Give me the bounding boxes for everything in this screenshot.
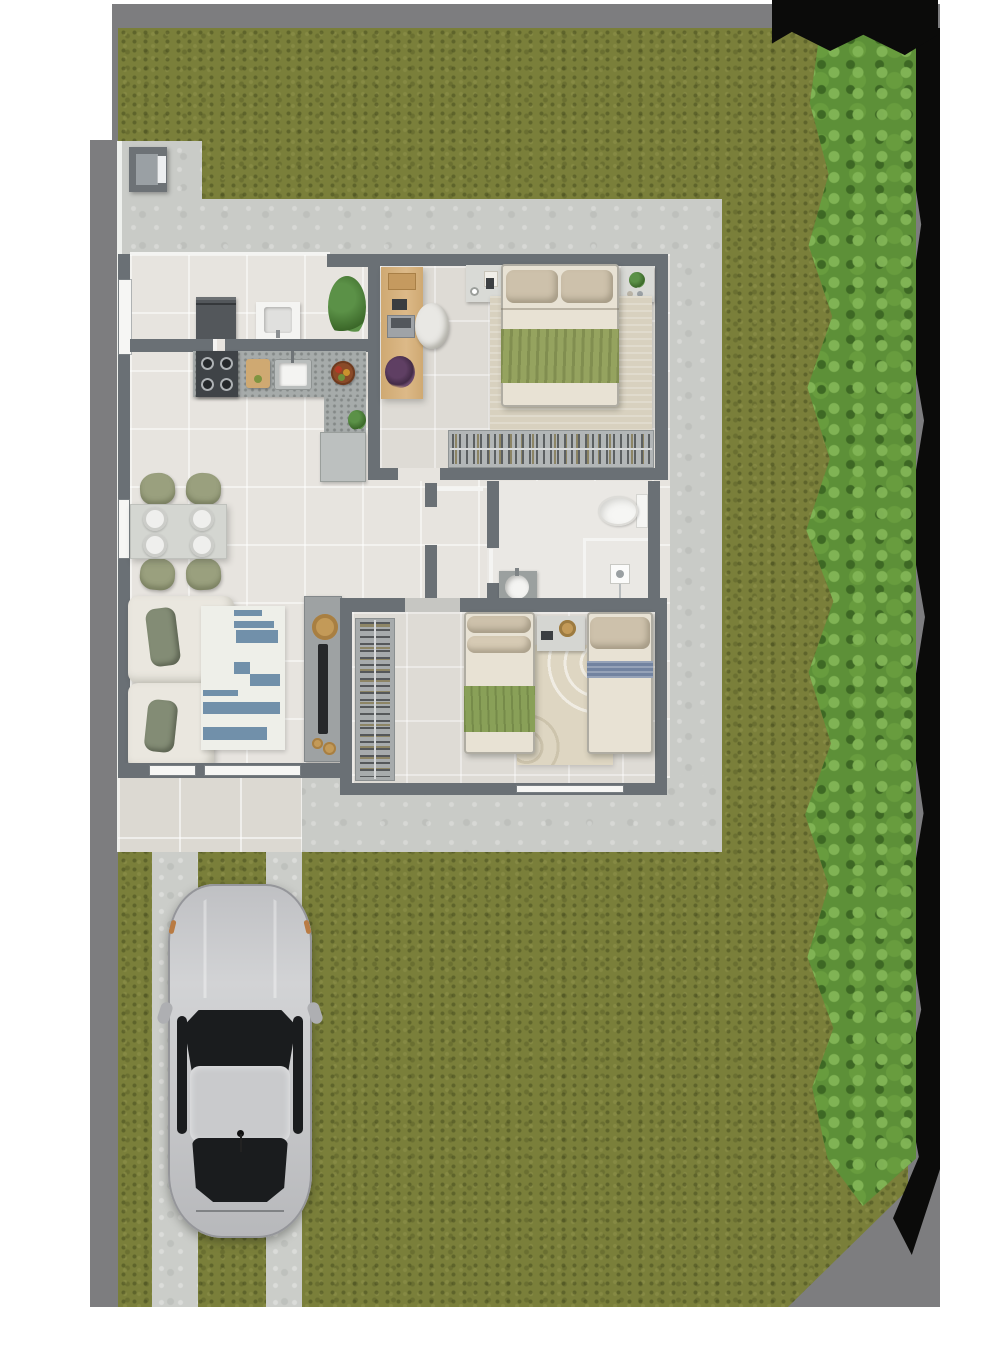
entry-gate-box [129,147,167,192]
side-window-right [293,1016,303,1134]
corridor-door-leaf [437,487,483,491]
dining-chair [185,472,222,506]
single-bed-blue [587,612,653,754]
burner [220,378,233,391]
sofa-pillow [143,699,178,754]
shower-head [616,570,624,578]
bed-pillow [467,616,531,633]
clothes-rack [355,618,395,781]
office-chair [415,303,449,349]
floor-plan-scene [0,0,1000,1354]
shower-glass-horizontal [583,538,648,541]
master-wardrobe [448,430,654,468]
laptop-screen [391,318,411,328]
counter-plant [348,410,366,430]
tablet [541,631,553,640]
walkway-right [668,256,722,852]
corridor-wall-stub [425,483,437,507]
rug-stripe [236,630,278,643]
bed-pillow [561,270,613,303]
desk-box [392,299,407,310]
dining-chair [185,557,222,591]
dinner-plate [143,507,167,531]
fruit [335,366,342,373]
second-bedroom-door [405,598,460,612]
left-wall-window-2 [119,500,129,558]
kids-nightstand [537,616,585,651]
toilet [598,494,650,528]
burner [220,357,233,370]
trunk-line [196,1210,284,1212]
nightstand-plant [629,272,645,288]
dinner-plate [143,533,167,557]
decor-plate [323,742,336,755]
desk-plant-purple [385,356,415,388]
bed-pillow [467,636,531,653]
desk-clock [559,620,576,637]
car [168,884,312,1238]
vegetable [254,375,262,383]
shower-arm [619,584,621,598]
dinner-plate [190,533,214,557]
decor-tray [312,614,338,640]
wardrobe-rail [450,448,652,450]
cutting-board [246,359,270,388]
dining-chair [139,557,177,592]
rack-rail [374,620,376,779]
fruit-bowl [331,361,355,385]
kitchen-sink [274,359,312,390]
sliding-door-glass-2 [205,766,300,775]
second-bedroom-window [517,786,623,792]
rear-porch-tiles [118,776,302,852]
rug-stripe [234,610,262,616]
rug-stripe [203,727,267,740]
service-plant [328,276,366,338]
master-top-wall-extension [327,254,380,267]
tank-faucet [276,330,280,338]
double-bed [501,264,619,407]
antenna-stem [240,1134,242,1152]
green-throw [501,329,619,383]
rug-stripe [203,690,238,696]
tv-panel [304,596,342,762]
fruit [338,374,345,381]
walkway-top [122,199,722,256]
lower-cabinet [320,432,366,482]
sink-faucet [291,351,294,363]
decor-plate [312,738,323,749]
phone [486,278,494,289]
desk-paper [388,273,416,290]
bathroom-door-leaf [489,549,493,583]
front-glass-line [130,252,330,255]
rug-stripe [234,662,250,674]
burner [201,357,214,370]
vanity-basin [505,575,529,599]
sheet-fold-line [501,308,619,310]
living-rug [201,606,285,750]
mattress [464,612,535,754]
stove [196,351,238,397]
toilet-bowl [598,496,638,526]
gate-inner-panel [136,154,158,185]
shower-head-plate [610,564,630,584]
bed-pillow [590,617,650,649]
burner [201,378,214,391]
fridge-divider [196,303,236,305]
laundry-tank [256,302,300,339]
windshield [184,1010,296,1072]
dining-table [130,504,227,559]
single-bed-green [464,612,535,754]
sliding-door-glass-1 [150,766,195,775]
hood-creases [186,894,294,998]
rug-stripe [203,702,280,714]
dining-chair [139,472,176,506]
refrigerator [196,297,236,340]
gate-door [157,156,166,183]
laptop [387,315,415,338]
tv-screen [318,644,328,734]
blue-stripe-blanket [587,661,653,678]
rug-stripe [234,621,274,628]
master-door-gap [398,468,440,481]
mug [470,287,479,296]
side-window-left [177,1016,187,1134]
shower-glass-vertical [583,538,586,600]
dinner-plate [190,507,214,531]
page-corner-mask [85,0,112,140]
bed-pillow [506,270,558,303]
vanity-faucet [515,568,519,576]
sink-basin [279,363,307,386]
rug-stripe [250,674,280,686]
green-blanket [464,686,535,732]
